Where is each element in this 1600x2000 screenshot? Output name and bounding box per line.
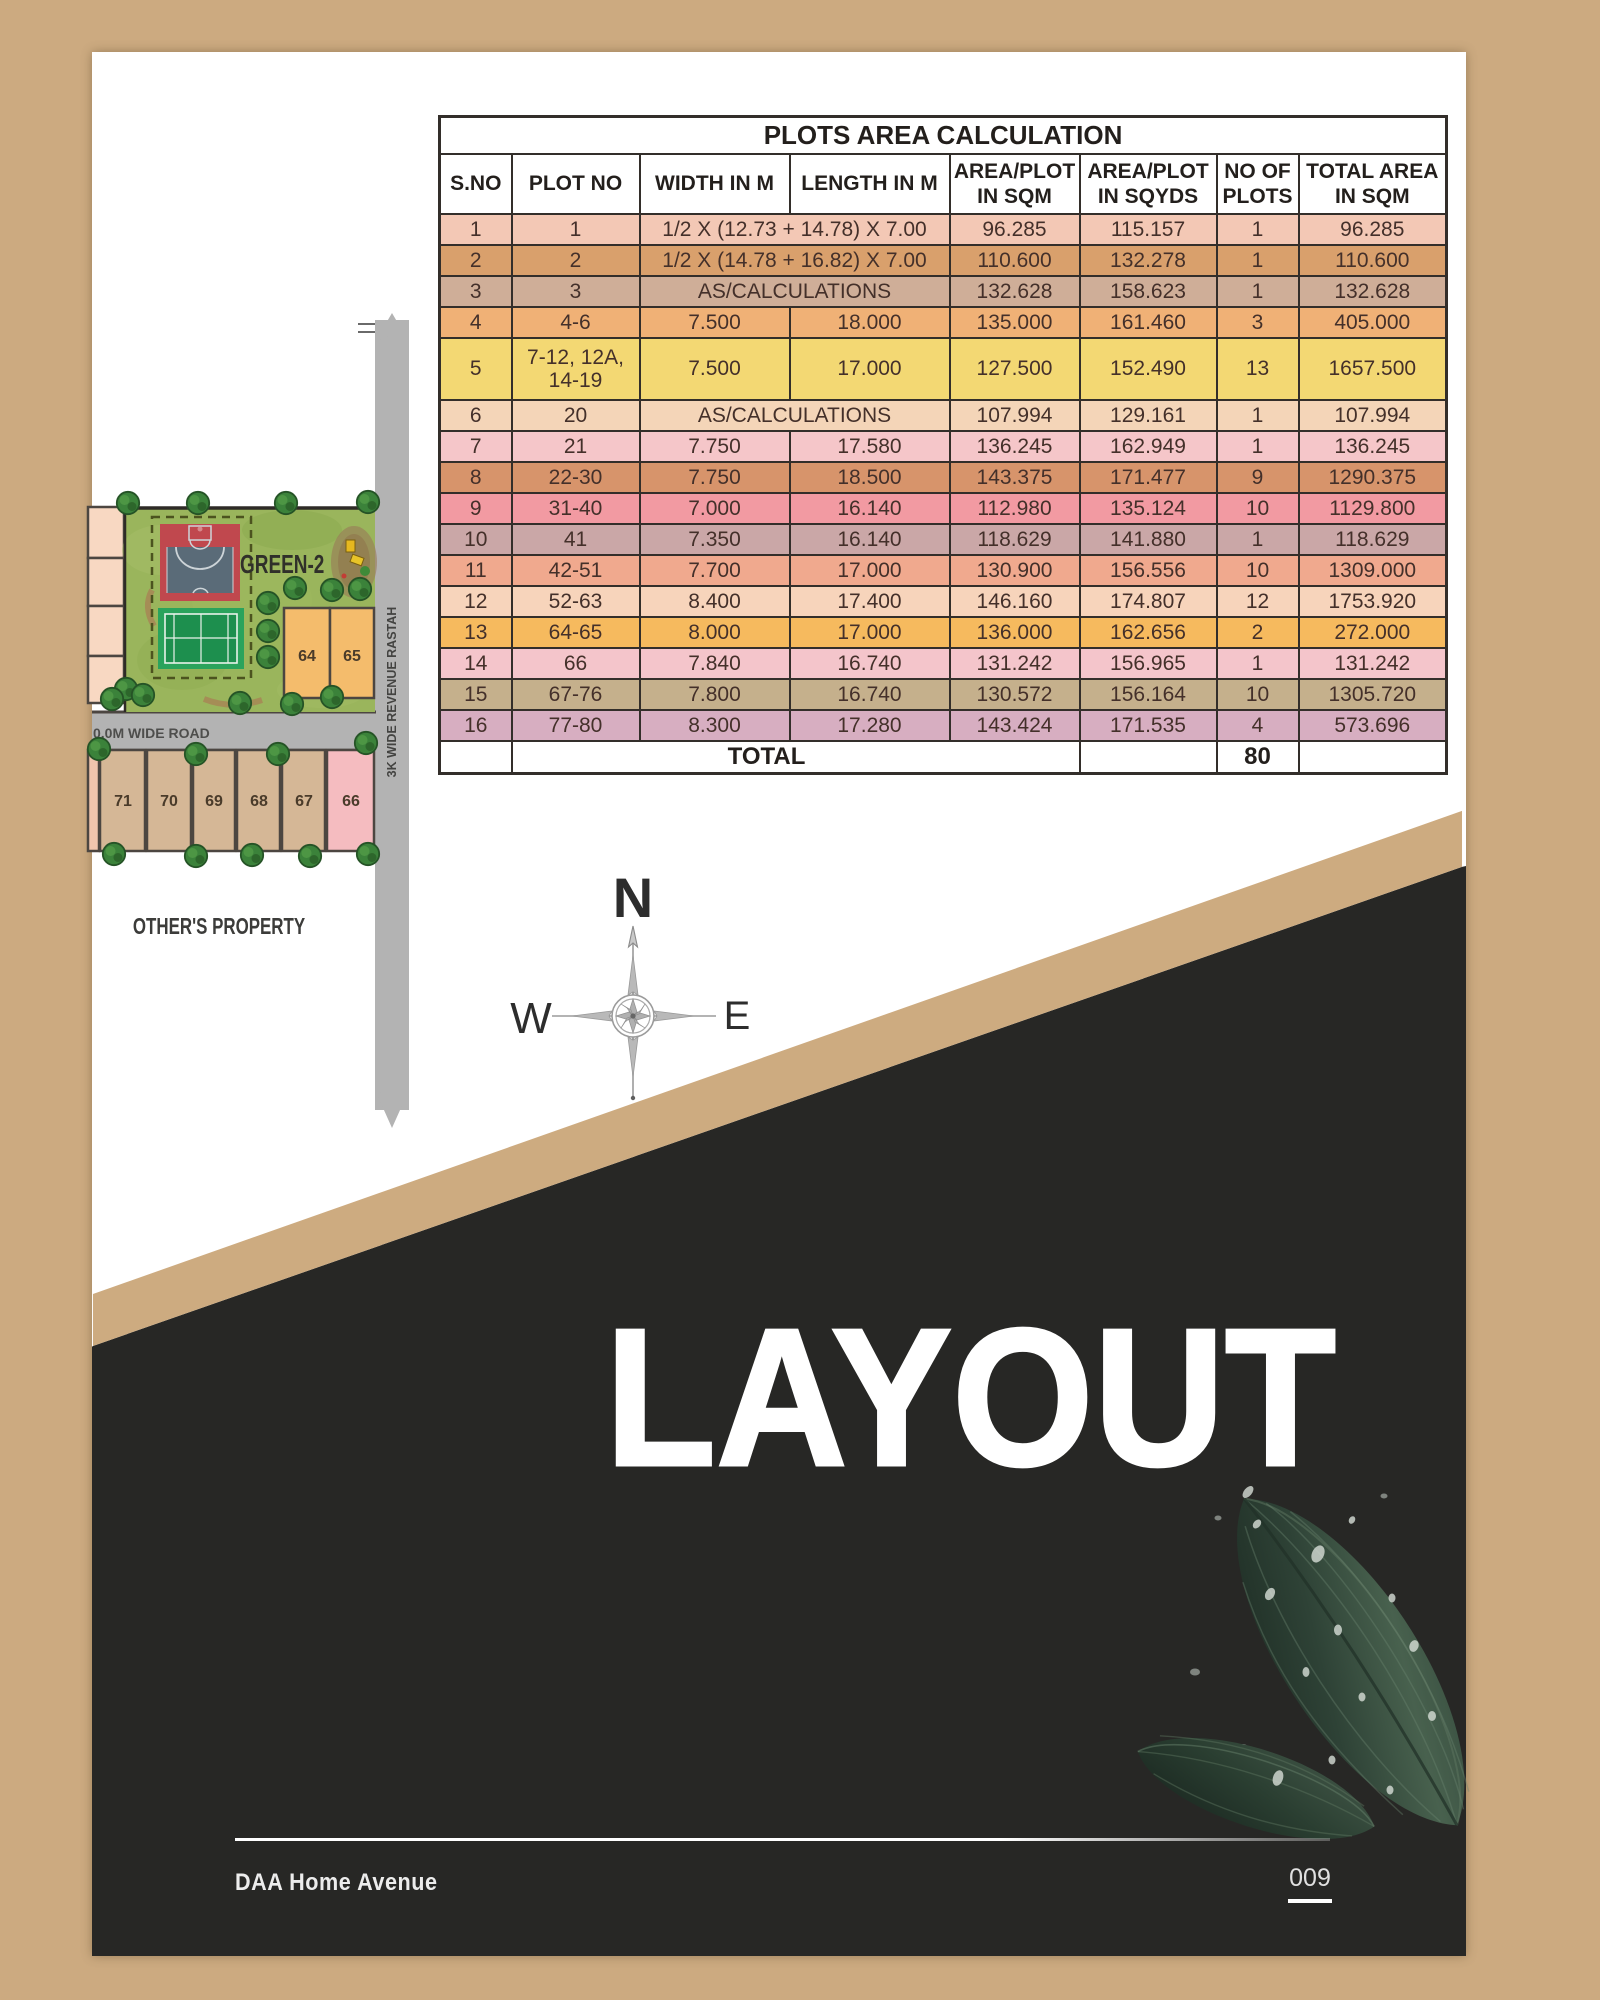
- svg-text:71: 71: [114, 793, 132, 810]
- svg-text:3K WIDE REVENUE RASTAH: 3K WIDE REVENUE RASTAH: [385, 607, 399, 778]
- svg-text:W: W: [510, 994, 552, 1043]
- svg-text:E: E: [724, 994, 751, 1038]
- svg-text:69: 69: [205, 793, 223, 810]
- svg-text:64: 64: [298, 648, 316, 665]
- svg-text:65: 65: [343, 648, 361, 665]
- svg-text:GREEN-2: GREEN-2: [240, 549, 324, 579]
- svg-text:68: 68: [250, 793, 268, 810]
- svg-text:67: 67: [295, 793, 313, 810]
- svg-text:OTHER'S PROPERTY: OTHER'S PROPERTY: [133, 913, 306, 939]
- svg-text:0.0M WIDE ROAD: 0.0M WIDE ROAD: [93, 725, 210, 741]
- svg-text:70: 70: [160, 793, 178, 810]
- svg-text:66: 66: [342, 793, 360, 810]
- svg-text:N: N: [613, 866, 653, 929]
